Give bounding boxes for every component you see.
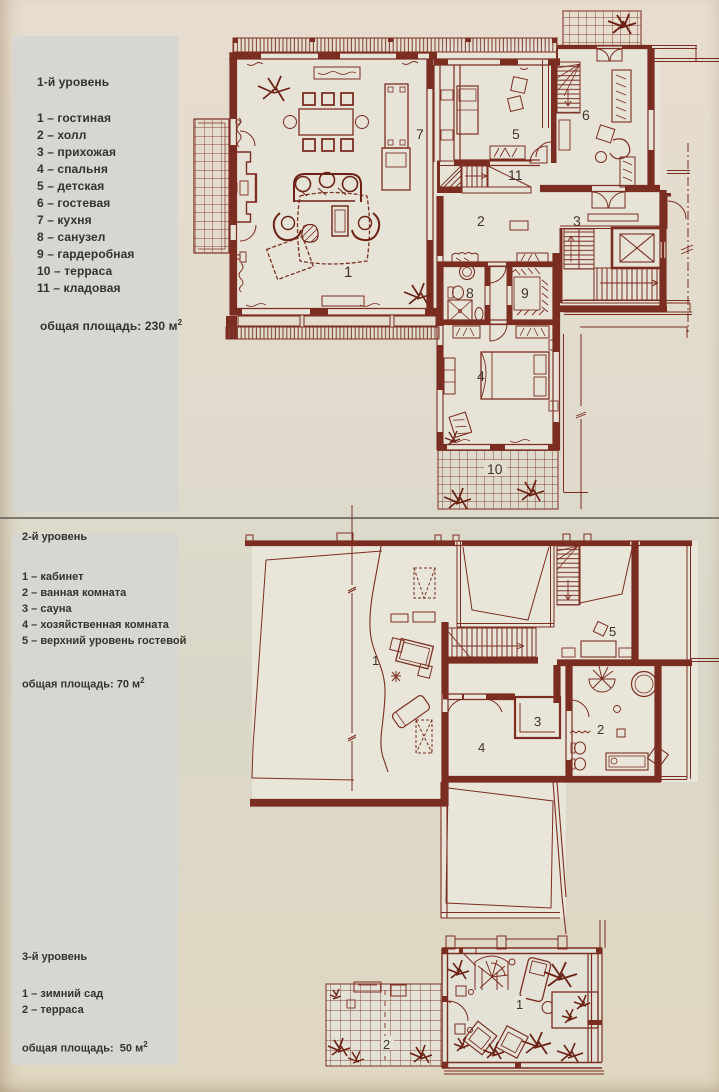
svg-text:10: 10 (487, 461, 503, 477)
svg-text:1: 1 (344, 264, 352, 281)
svg-text:2: 2 (597, 722, 604, 737)
svg-text:5: 5 (609, 624, 616, 639)
svg-text:8: 8 (466, 285, 474, 301)
svg-text:6: 6 (582, 107, 590, 123)
svg-text:5: 5 (512, 126, 520, 142)
svg-text:4: 4 (478, 740, 485, 755)
svg-text:7: 7 (416, 126, 424, 142)
svg-text:11: 11 (508, 167, 523, 183)
svg-text:9: 9 (521, 285, 529, 301)
svg-text:3: 3 (534, 714, 541, 729)
svg-text:3: 3 (573, 213, 581, 229)
svg-text:2: 2 (477, 213, 485, 229)
svg-text:2: 2 (383, 1037, 390, 1052)
svg-text:1: 1 (516, 997, 523, 1012)
svg-text:1: 1 (372, 653, 379, 668)
svg-text:4: 4 (477, 368, 485, 384)
